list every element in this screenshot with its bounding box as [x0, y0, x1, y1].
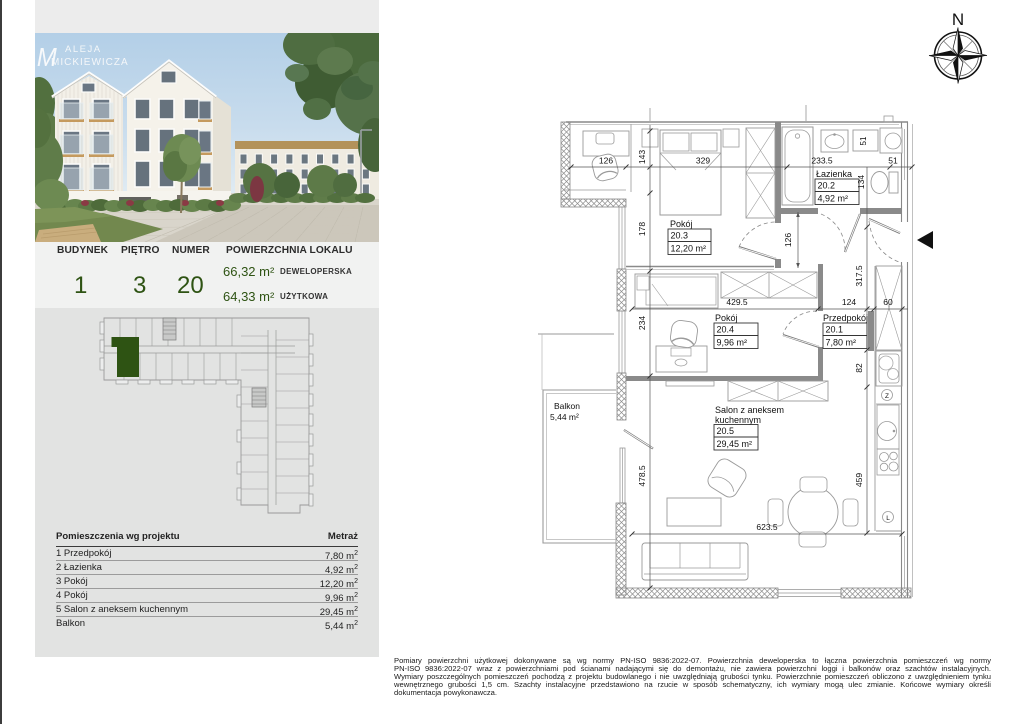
svg-text:429.5: 429.5: [726, 297, 748, 307]
svg-text:L: L: [886, 515, 890, 522]
svg-text:20.2: 20.2: [818, 180, 836, 190]
svg-text:124: 124: [842, 297, 856, 307]
svg-text:Łazienka: Łazienka: [816, 169, 852, 179]
svg-text:233.5: 233.5: [811, 156, 833, 166]
svg-text:4,92 m²: 4,92 m²: [818, 193, 849, 203]
svg-text:Z: Z: [885, 393, 889, 400]
svg-text:126: 126: [783, 233, 793, 247]
svg-text:20.1: 20.1: [826, 324, 844, 334]
svg-text:20.4: 20.4: [717, 324, 735, 334]
svg-text:459: 459: [854, 473, 864, 487]
svg-text:MICKIEWICZA: MICKIEWICZA: [51, 57, 129, 68]
svg-text:126: 126: [599, 156, 613, 166]
svg-text:317.5: 317.5: [854, 265, 864, 287]
svg-text:Pokój: Pokój: [670, 219, 693, 229]
svg-text:Salon z aneksem: Salon z aneksem: [715, 405, 784, 415]
svg-text:20.3: 20.3: [671, 230, 689, 240]
svg-text:478.5: 478.5: [637, 465, 647, 487]
svg-text:143: 143: [637, 150, 647, 164]
svg-text:134: 134: [856, 175, 866, 189]
svg-text:51: 51: [888, 156, 898, 166]
svg-text:234: 234: [637, 316, 647, 330]
svg-text:623.5: 623.5: [756, 522, 778, 532]
svg-text:5,44 m²: 5,44 m²: [550, 412, 579, 422]
svg-text:60: 60: [883, 297, 893, 307]
svg-text:7,80 m²: 7,80 m²: [826, 337, 857, 347]
svg-text:kuchennym: kuchennym: [715, 415, 761, 425]
svg-text:ALEJA: ALEJA: [65, 44, 102, 55]
svg-text:Przedpokój: Przedpokój: [823, 313, 868, 323]
svg-text:51: 51: [859, 136, 868, 145]
svg-text:29,45 m²: 29,45 m²: [717, 439, 753, 449]
svg-text:178: 178: [637, 222, 647, 236]
svg-text:20.5: 20.5: [717, 426, 735, 436]
svg-text:82: 82: [854, 363, 864, 373]
svg-text:Pokój: Pokój: [715, 313, 738, 323]
svg-text:9,96 m²: 9,96 m²: [717, 337, 748, 347]
svg-text:Balkon: Balkon: [554, 401, 580, 411]
svg-text:329: 329: [696, 156, 710, 166]
svg-text:12,20 m²: 12,20 m²: [671, 243, 707, 253]
svg-text:N: N: [952, 10, 964, 29]
